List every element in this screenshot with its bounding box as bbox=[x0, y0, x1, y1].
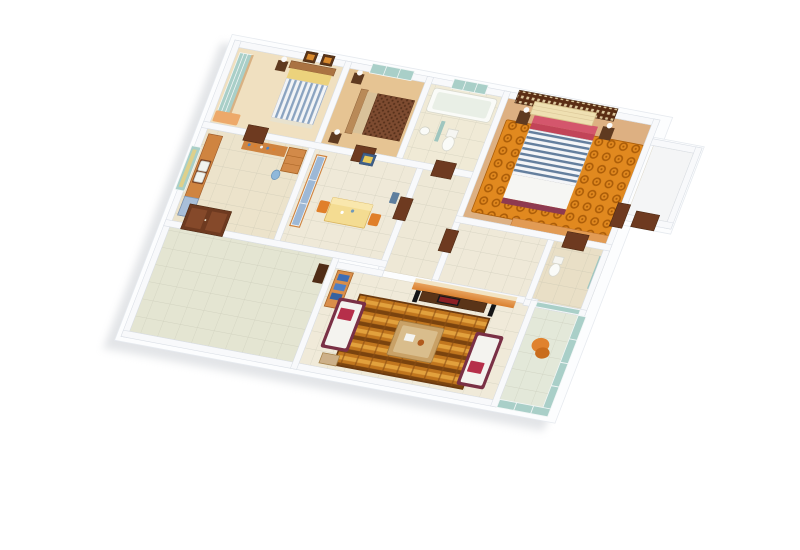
floorplan-render bbox=[0, 0, 800, 550]
toilet-tank bbox=[552, 256, 564, 265]
